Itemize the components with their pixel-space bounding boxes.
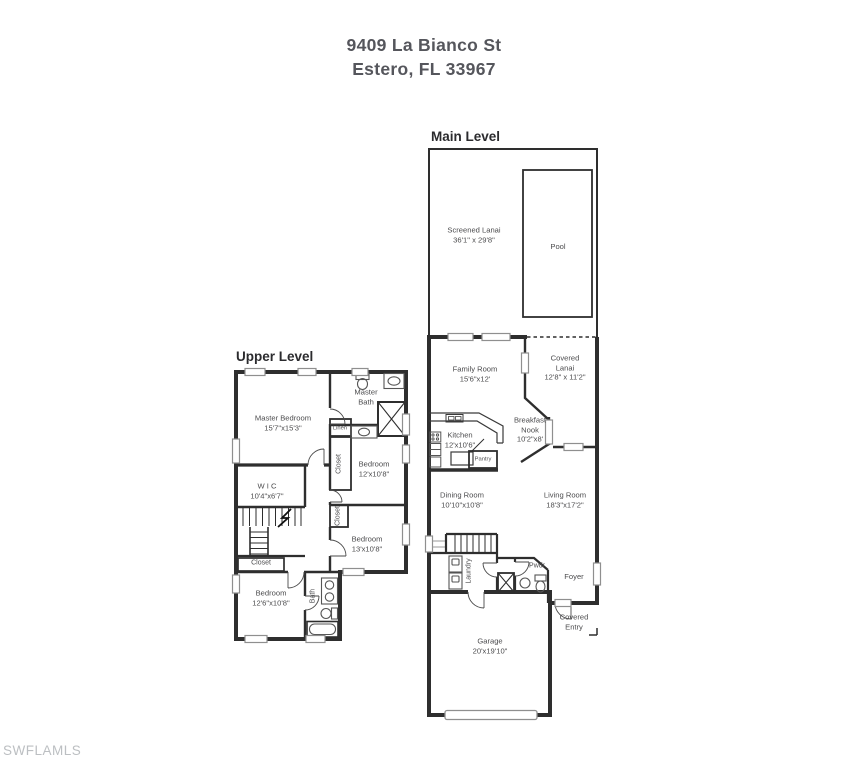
shower-icon <box>378 402 405 436</box>
room-label-bedroom4: Bedroom 12'6"x10'8" <box>252 588 289 607</box>
toilet-icon <box>332 608 338 619</box>
covered-entry-corner <box>589 628 597 635</box>
room-label-pantry: Pantry <box>475 456 492 463</box>
room-label-pool: Pool <box>550 242 565 252</box>
room-label-covered-lanai: Covered Lanai 12'8" x 11'2" <box>544 353 585 382</box>
room-label-dining-room: Dining Room 10'10"x10'8" <box>440 490 484 509</box>
room-label-bedroom2: Bedroom 12'x10'8" <box>359 459 390 478</box>
main-level-label: Main Level <box>431 129 500 144</box>
floor-plan-drawing <box>0 0 848 768</box>
room-label-master-bath: Master Bath <box>354 387 377 406</box>
room-label-closet-bedroom3: Closet <box>335 506 344 526</box>
range-fridge-icons <box>430 432 441 467</box>
linen-closet-icon <box>498 573 514 592</box>
toilet-icon <box>535 575 546 581</box>
watermark: SWFLAMLS <box>3 743 81 758</box>
room-label-kitchen: Kitchen 12'x10'6" <box>445 430 476 449</box>
vanity-icon <box>322 578 338 604</box>
property-address: 9409 La Bianco St Estero, FL 33967 <box>0 34 848 81</box>
room-label-foyer: Foyer <box>564 572 583 582</box>
room-label-covered-entry: Covered Entry <box>560 612 589 631</box>
stairs-direction-arrow <box>278 509 291 527</box>
address-line2: Estero, FL 33967 <box>0 58 848 82</box>
room-label-laundry: Laundry <box>466 558 475 583</box>
room-label-bedroom3: Bedroom 13'x10'8" <box>352 534 383 553</box>
room-label-family-room: Family Room 15'6"x12' <box>453 364 498 383</box>
room-label-breakfast-nook: Breakfast Nook 10'2"x8' <box>514 415 546 444</box>
room-label-living-room: Living Room 18'3"x17'2" <box>544 490 586 509</box>
room-label-powder: Pwdr <box>529 563 545 572</box>
upper-level-label: Upper Level <box>236 349 313 364</box>
garage-door <box>445 711 537 720</box>
powder-fixtures <box>520 575 546 592</box>
sink-icon <box>520 578 530 588</box>
room-label-bath: Bath <box>310 589 319 603</box>
room-label-closet-bedroom2: Closet <box>336 454 345 474</box>
hall-bath-fixtures <box>307 578 338 637</box>
floor-plan-page: 9409 La Bianco St Estero, FL 33967 Main … <box>0 0 848 768</box>
room-label-screened-lanai: Screened Lanai 36'1" x 29'8" <box>447 225 500 244</box>
room-label-wic: W I C 10'4"x6'7" <box>250 481 283 500</box>
front-door-threshold <box>555 600 571 607</box>
room-label-closet-bedroom4: Closet <box>251 560 271 569</box>
room-label-master-bedroom: Master Bedroom 15'7"x15'3" <box>255 413 311 432</box>
washer-dryer-icon <box>449 556 462 589</box>
room-label-linen: Linen <box>333 425 347 432</box>
room-label-garage: Garage 20'x19'10" <box>473 636 508 655</box>
upper-stairs <box>243 508 301 557</box>
address-line1: 9409 La Bianco St <box>0 34 848 58</box>
vanity-icon <box>384 374 404 389</box>
